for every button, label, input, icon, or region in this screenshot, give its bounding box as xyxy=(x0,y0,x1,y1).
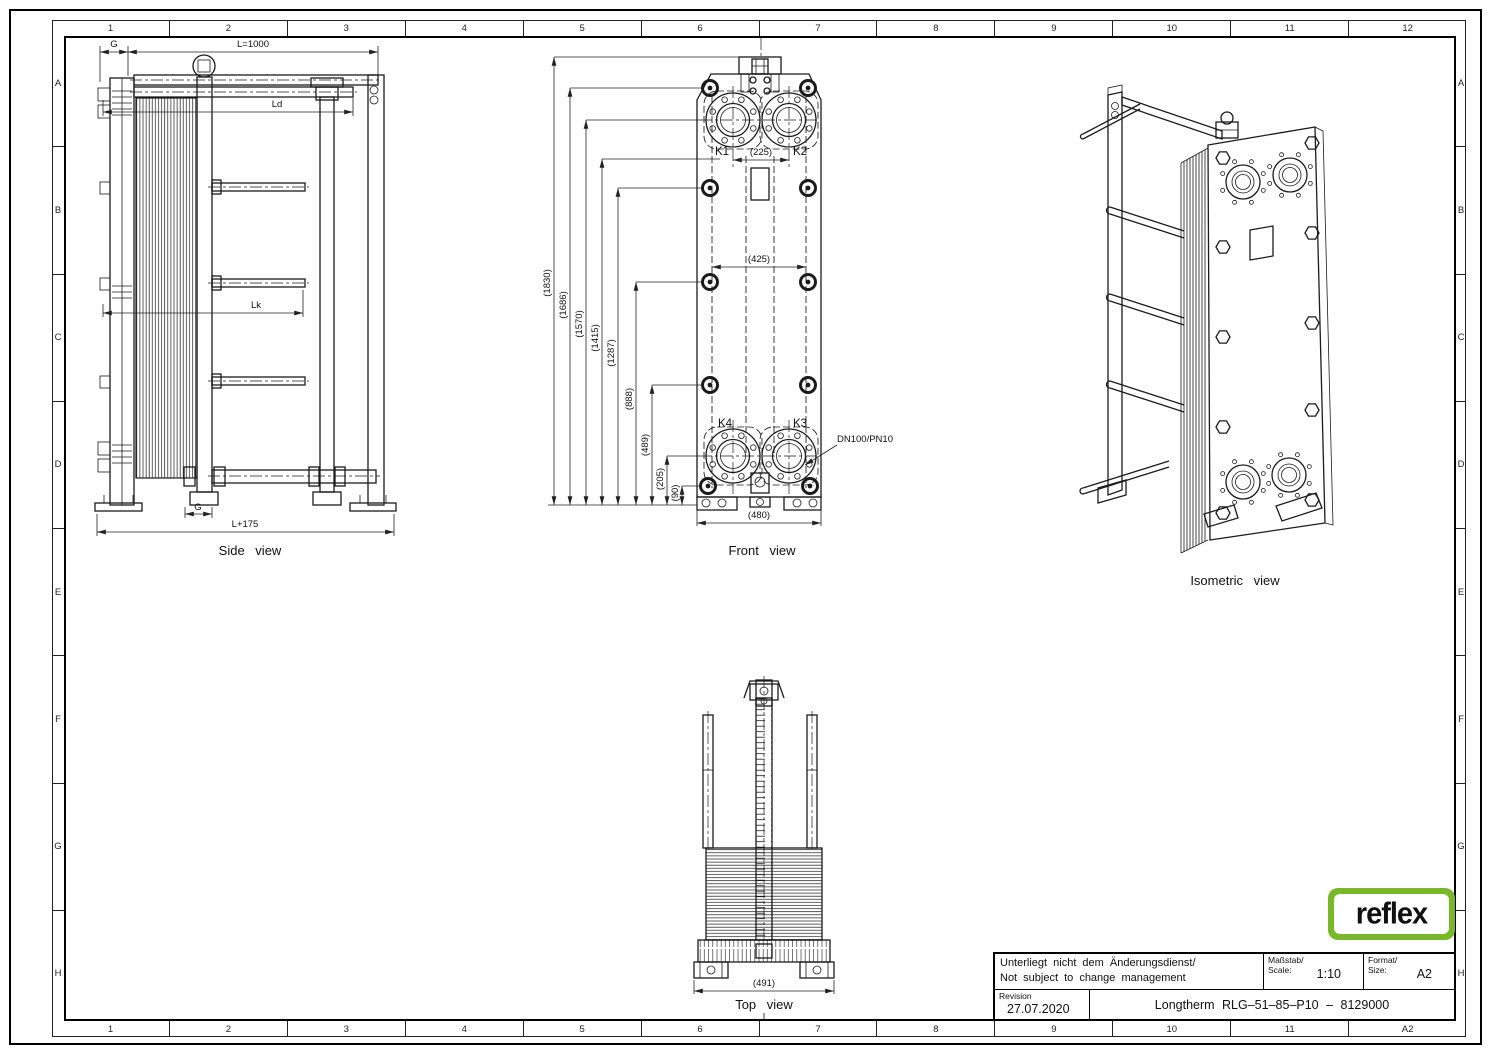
grid-col-label: 12 xyxy=(1349,20,1466,36)
port-label-k3: K3 xyxy=(793,418,807,430)
pressure-plate xyxy=(197,77,212,492)
guide-bar xyxy=(1080,461,1169,494)
grid-row-label: C xyxy=(52,275,64,402)
dim-label: (1415) xyxy=(590,324,601,351)
port-label-k4: K4 xyxy=(718,418,733,430)
dim-label: (1287) xyxy=(606,339,617,366)
reflex-logo-text: reflex xyxy=(1356,897,1427,932)
foot xyxy=(694,962,728,978)
drawing-title: Longtherm RLG–51–85–P10 – 8129000 xyxy=(1090,990,1454,1020)
grid-row-label: C xyxy=(1456,275,1466,402)
scale-value: 1:10 xyxy=(1317,967,1341,981)
support-leg xyxy=(320,97,334,492)
grid-col-label: 4 xyxy=(406,20,524,36)
format-cell: Format/ Size: A2 xyxy=(1364,954,1454,989)
grid-corner-format: A2 xyxy=(1349,1021,1466,1037)
revision-date: 27.07.2020 xyxy=(1007,1002,1070,1016)
grid-col-label: 3 xyxy=(288,20,406,36)
grid-row-label: B xyxy=(52,147,64,274)
grid-band-bottom: 1 2 3 4 5 6 7 8 9 10 11 A2 xyxy=(52,1021,1466,1037)
port-label-k1: K1 xyxy=(715,146,729,158)
foot xyxy=(350,503,396,511)
view-caption-side: Side view xyxy=(219,543,282,558)
dim-label: (205) xyxy=(655,468,666,490)
isometric-view: Isometric view xyxy=(1080,85,1333,588)
grid-col-label: 9 xyxy=(995,20,1113,36)
tie-rod xyxy=(1107,381,1185,412)
grid-row-label: E xyxy=(1456,529,1466,656)
dim-label: L=1000 xyxy=(237,39,269,50)
grid-col-label: 6 xyxy=(642,1021,760,1037)
reflex-logo-inner: reflex xyxy=(1334,894,1449,934)
dim-label: (1830) xyxy=(542,269,553,296)
revision-cell: Revision 27.07.2020 xyxy=(995,990,1090,1020)
grid-row-label: A xyxy=(52,20,64,147)
plate-pack xyxy=(706,848,822,940)
grid-row-label: G xyxy=(1456,784,1466,911)
grid-row-label: F xyxy=(52,656,64,783)
change-note-de: Unterliegt nicht dem Änderungsdienst/ xyxy=(1000,956,1263,971)
support-column xyxy=(368,75,384,505)
foot xyxy=(1204,505,1238,527)
dim-label: (489) xyxy=(640,434,651,456)
grid-row-label: F xyxy=(1456,656,1466,783)
engineering-drawing: G L=1000 Ld Lk G L+175 Side view xyxy=(64,36,1456,1021)
scale-cell: Maßstab/ Scale: 1:10 xyxy=(1264,954,1364,989)
grid-col-label: 1 xyxy=(52,1021,170,1037)
dim-label: Lk xyxy=(251,300,261,311)
dim-label: (425) xyxy=(748,254,770,265)
nameplate xyxy=(751,168,769,200)
grid-row-label: D xyxy=(1456,402,1466,529)
tie-bolts xyxy=(208,180,309,388)
reflex-logo: reflex xyxy=(1328,888,1455,940)
change-note-en: Not subject to change management xyxy=(1000,971,1263,986)
grid-col-label: 5 xyxy=(524,1021,642,1037)
grid-col-label: 5 xyxy=(524,20,642,36)
carrying-bar xyxy=(1122,97,1222,139)
plate-pack xyxy=(136,98,197,478)
dim-label: (480) xyxy=(748,510,770,521)
grid-band-left: A B C D E F G H xyxy=(52,20,64,1037)
front-plate xyxy=(1208,127,1325,540)
grid-col-label: 11 xyxy=(1231,20,1349,36)
foot xyxy=(1276,493,1322,521)
tie-rod xyxy=(1107,207,1185,238)
view-caption-isometric: Isometric view xyxy=(1190,573,1280,588)
format-value: A2 xyxy=(1417,967,1432,981)
view-caption-top: Top view xyxy=(735,997,793,1012)
plate-pack xyxy=(1181,148,1208,553)
grid-col-label: 7 xyxy=(760,1021,878,1037)
grid-col-label: 8 xyxy=(877,1021,995,1037)
grid-row-label: D xyxy=(52,402,64,529)
foot xyxy=(697,497,737,510)
foot xyxy=(95,503,142,511)
grid-band-top: 1 2 3 4 5 6 7 8 9 10 11 12 xyxy=(52,20,1466,36)
dim-label: Ld xyxy=(272,99,283,110)
dim-label: (491) xyxy=(753,978,775,989)
title-block: Unterliegt nicht dem Änderungsdienst/ No… xyxy=(993,952,1456,1021)
grid-col-label: 2 xyxy=(170,20,288,36)
grid-row-label: B xyxy=(1456,147,1466,274)
grid-row-label: G xyxy=(52,784,64,911)
grid-col-label: 10 xyxy=(1113,20,1231,36)
drawing-sheet: 1 2 3 4 5 6 7 8 9 10 11 12 1 2 3 4 5 6 7… xyxy=(0,0,1500,1060)
dim-label: (90) xyxy=(670,485,681,502)
grid-col-label: 9 xyxy=(995,1021,1113,1037)
grid-col-label: 8 xyxy=(877,20,995,36)
revision-label: Revision xyxy=(999,992,1032,1002)
grid-col-label: 2 xyxy=(170,1021,288,1037)
foot xyxy=(800,962,834,978)
foot xyxy=(784,497,821,510)
side-view: G L=1000 Ld Lk G L+175 Side view xyxy=(95,39,396,558)
rear-frame xyxy=(1108,92,1122,495)
grid-col-label: 6 xyxy=(642,20,760,36)
front-view: K1 K2 K4 K3 (225) (425) (480) DN100/PN10 xyxy=(542,38,893,558)
tie-rod xyxy=(1107,294,1185,325)
format-label-en: Size: xyxy=(1368,966,1397,976)
connection-label: DN100/PN10 xyxy=(837,434,893,445)
grid-col-label: 3 xyxy=(288,1021,406,1037)
scale-label-en: Scale: xyxy=(1268,966,1303,976)
roller-icon xyxy=(193,55,215,77)
top-view: (491) Top view xyxy=(694,676,834,1021)
dim-label: L+175 xyxy=(232,519,259,530)
dim-label: (888) xyxy=(624,388,635,410)
nameplate xyxy=(1250,226,1273,260)
grid-row-label: H xyxy=(1456,911,1466,1037)
grid-col-label: 10 xyxy=(1113,1021,1231,1037)
frame-plate xyxy=(698,940,830,962)
grid-row-label: A xyxy=(1456,20,1466,147)
grid-row-label: E xyxy=(52,529,64,656)
grid-col-label: 11 xyxy=(1231,1021,1349,1037)
grid-col-label: 4 xyxy=(406,1021,524,1037)
change-note: Unterliegt nicht dem Änderungsdienst/ No… xyxy=(995,954,1264,989)
lower-guide-bar xyxy=(212,470,376,483)
grid-col-label: 1 xyxy=(52,20,170,36)
dim-label: (1570) xyxy=(574,310,585,337)
grid-col-label: 7 xyxy=(760,20,878,36)
dim-label: (225) xyxy=(750,147,772,158)
grid-band-right: A B C D E F G H xyxy=(1456,20,1466,1037)
port-label-k2: K2 xyxy=(793,146,807,158)
dim-label: (1686) xyxy=(558,291,569,318)
dim-label: G xyxy=(110,39,117,50)
grid-row-label: H xyxy=(52,911,64,1037)
view-caption-front: Front view xyxy=(729,543,797,558)
dim-label: G xyxy=(194,502,201,513)
